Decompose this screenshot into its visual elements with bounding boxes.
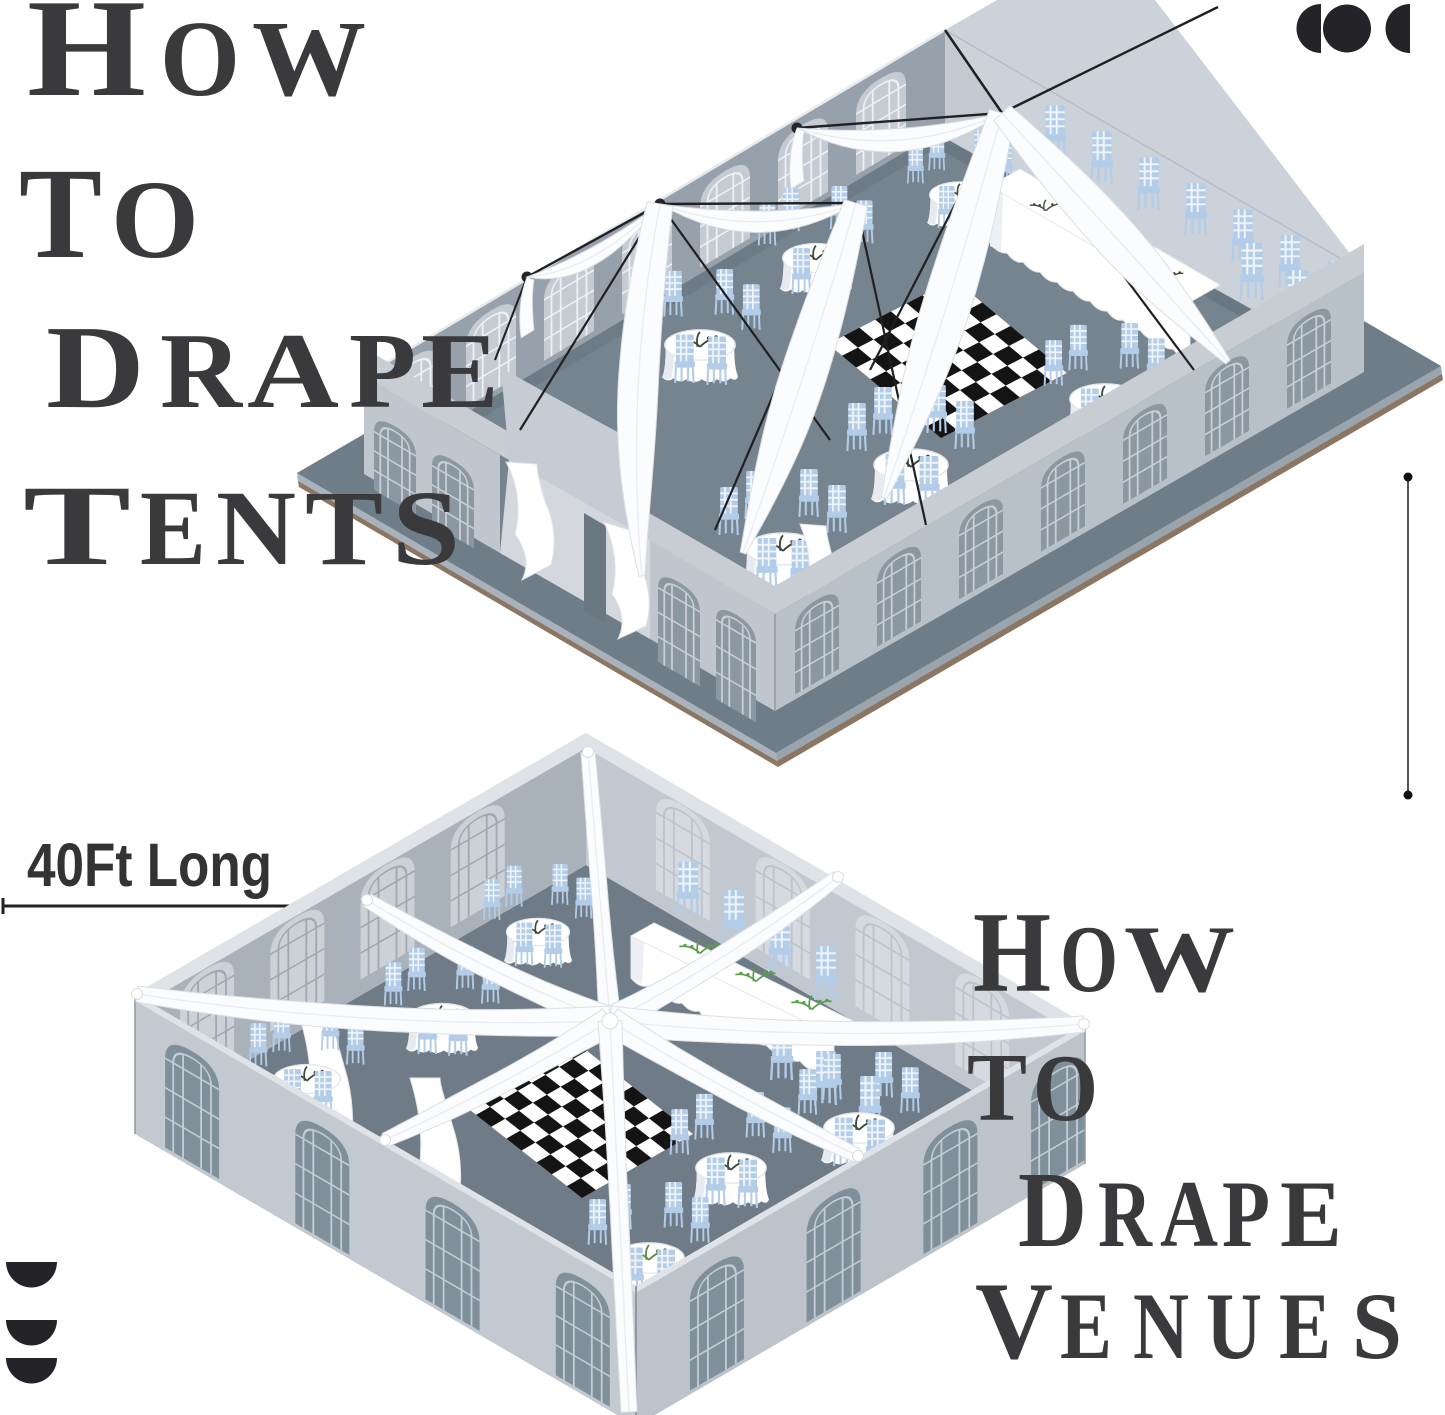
svg-text:R: R — [160, 312, 243, 431]
svg-text:A: A — [247, 312, 339, 431]
svg-text:T: T — [305, 470, 383, 588]
svg-text:E: E — [1279, 1273, 1331, 1379]
svg-text:S: S — [1352, 1273, 1402, 1379]
svg-text:E: E — [421, 312, 499, 431]
svg-text:H: H — [27, 0, 146, 126]
svg-text:U: U — [1206, 1273, 1262, 1379]
svg-text:P: P — [349, 312, 416, 431]
svg-text:H: H — [973, 889, 1051, 1017]
svg-text:O: O — [1060, 906, 1118, 1012]
svg-text:O: O — [111, 159, 199, 282]
svg-text:O: O — [1033, 1035, 1098, 1141]
svg-text:E: E — [1060, 1273, 1112, 1379]
svg-text:E: E — [140, 470, 206, 588]
svg-text:N: N — [1133, 1273, 1189, 1379]
svg-text:D: D — [46, 301, 145, 433]
svg-text:O: O — [160, 0, 240, 119]
svg-text:D: D — [1018, 1151, 1087, 1270]
svg-text:T: T — [19, 142, 102, 286]
svg-text:T: T — [967, 1034, 1027, 1142]
svg-text:40Ft Long: 40Ft Long — [27, 831, 272, 899]
svg-text:A: A — [1160, 1161, 1218, 1267]
svg-text:W: W — [1124, 906, 1235, 1012]
svg-text:E: E — [1280, 1161, 1342, 1267]
svg-text:P: P — [1222, 1161, 1270, 1267]
svg-text:W: W — [252, 0, 366, 119]
svg-text:V: V — [975, 1260, 1053, 1382]
svg-text:S: S — [392, 470, 460, 588]
svg-text:N: N — [216, 470, 296, 588]
svg-text:T: T — [23, 462, 131, 589]
svg-text:R: R — [1098, 1161, 1153, 1267]
